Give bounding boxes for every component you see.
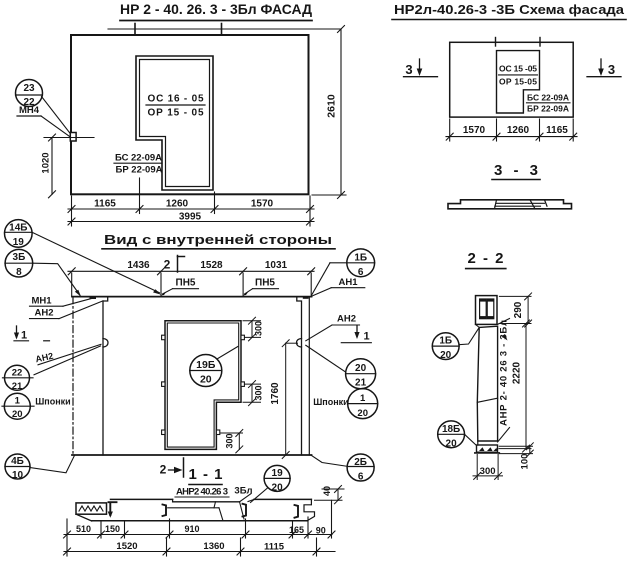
svg-text:БР 22-09А: БР 22-09А [116, 164, 163, 175]
svg-text:МН1: МН1 [31, 296, 52, 307]
svg-text:19: 19 [13, 237, 25, 248]
svg-text:Шпонки: Шпонки [313, 397, 348, 407]
svg-text:20: 20 [357, 408, 368, 419]
svg-text:20: 20 [355, 363, 367, 374]
svg-text:510: 510 [76, 524, 91, 534]
svg-text:300: 300 [225, 433, 235, 448]
svg-text:20: 20 [200, 374, 212, 386]
svg-text:14Б: 14Б [9, 222, 27, 233]
svg-text:2220: 2220 [512, 361, 523, 384]
svg-text:3: 3 [608, 62, 615, 77]
svg-text:ОС 15 -05: ОС 15 -05 [499, 64, 537, 74]
svg-text:20: 20 [446, 438, 458, 449]
svg-text:1115: 1115 [264, 542, 285, 553]
svg-text:21: 21 [12, 381, 23, 392]
svg-text:2: 2 [164, 258, 171, 272]
svg-text:3995: 3995 [179, 212, 202, 223]
svg-text:АН2: АН2 [337, 314, 356, 325]
svg-text:100: 100 [520, 454, 531, 470]
svg-text:1Б: 1Б [354, 252, 367, 263]
svg-text:1570: 1570 [251, 199, 274, 210]
svg-text:1: 1 [15, 396, 21, 407]
svg-text:6: 6 [358, 472, 364, 483]
svg-text:ОР 15 - 05: ОР 15 - 05 [148, 108, 204, 119]
svg-text:2: 2 [160, 463, 167, 477]
svg-text:АН2: АН2 [34, 308, 53, 319]
svg-text:3 - 3: 3 - 3 [494, 162, 538, 179]
svg-text:2610: 2610 [326, 94, 338, 118]
svg-text:ПН5: ПН5 [255, 278, 275, 289]
svg-text:4Б: 4Б [11, 456, 24, 467]
svg-text:3: 3 [405, 62, 412, 77]
svg-text:1760: 1760 [270, 382, 281, 405]
svg-text:ОР 15-05: ОР 15-05 [499, 77, 537, 87]
svg-text:19: 19 [272, 468, 284, 479]
svg-text:АН1: АН1 [338, 277, 358, 288]
svg-text:АНР2 40.26 3: АНР2 40.26 3 [176, 487, 228, 498]
svg-text:300: 300 [480, 466, 496, 477]
svg-text:20: 20 [272, 482, 284, 493]
svg-text:1: 1 [21, 330, 27, 342]
svg-text:21: 21 [355, 378, 367, 389]
svg-text:ОС 16 - 05: ОС 16 - 05 [148, 94, 204, 105]
svg-text:22: 22 [12, 367, 23, 378]
svg-text:ПН5: ПН5 [176, 278, 196, 289]
svg-text:1: 1 [363, 331, 369, 343]
svg-text:БР 22-09А: БР 22-09А [527, 104, 569, 114]
svg-text:1570: 1570 [463, 125, 486, 136]
svg-text:290: 290 [513, 301, 524, 318]
svg-text:МН4: МН4 [19, 105, 40, 116]
svg-text:БС 22-09А: БС 22-09А [527, 93, 569, 103]
svg-text:1260: 1260 [507, 125, 530, 136]
svg-text:1031: 1031 [265, 260, 288, 271]
svg-text:1: 1 [360, 393, 366, 404]
svg-text:1Б: 1Б [439, 336, 452, 347]
svg-text:1020: 1020 [41, 152, 52, 173]
svg-text:300: 300 [254, 385, 264, 400]
svg-text:10: 10 [12, 470, 24, 481]
svg-text:НР 2 - 40. 26. 3 - 3Бл ФАСАД: НР 2 - 40. 26. 3 - 3Бл ФАСАД [120, 2, 312, 17]
svg-text:165: 165 [289, 525, 304, 535]
svg-text:150: 150 [105, 524, 120, 534]
svg-text:18Б: 18Б [442, 424, 460, 435]
svg-text:6: 6 [358, 267, 364, 278]
svg-text:1260: 1260 [166, 199, 189, 210]
svg-text:БС 22-09А: БС 22-09А [115, 152, 162, 163]
svg-text:2Б: 2Б [354, 457, 367, 468]
svg-text:2 - 2: 2 - 2 [468, 250, 504, 267]
svg-text:1165: 1165 [94, 199, 116, 210]
svg-text:1436: 1436 [127, 260, 150, 271]
svg-text:300: 300 [254, 321, 264, 336]
svg-text:40: 40 [322, 486, 332, 496]
svg-text:20: 20 [440, 350, 452, 361]
svg-text:90: 90 [316, 526, 326, 536]
svg-text:1528: 1528 [200, 260, 223, 271]
svg-text:1 - 1: 1 - 1 [189, 466, 223, 483]
svg-text:8: 8 [16, 267, 22, 278]
svg-text:1520: 1520 [116, 541, 137, 552]
svg-text:23: 23 [23, 83, 35, 94]
svg-text:1360: 1360 [203, 541, 224, 552]
svg-text:19Б: 19Б [196, 359, 216, 371]
svg-text:1165: 1165 [546, 125, 568, 136]
svg-text:3Б: 3Б [13, 252, 26, 263]
svg-text:Шпонки: Шпонки [35, 397, 70, 407]
svg-text:20: 20 [12, 409, 23, 420]
svg-text:НР2л-40.26-3 -3Б Схема фасада: НР2л-40.26-3 -3Б Схема фасада [394, 3, 625, 17]
svg-text:Вид с внутренней стороны: Вид с внутренней стороны [104, 232, 332, 247]
svg-text:910: 910 [184, 524, 199, 534]
